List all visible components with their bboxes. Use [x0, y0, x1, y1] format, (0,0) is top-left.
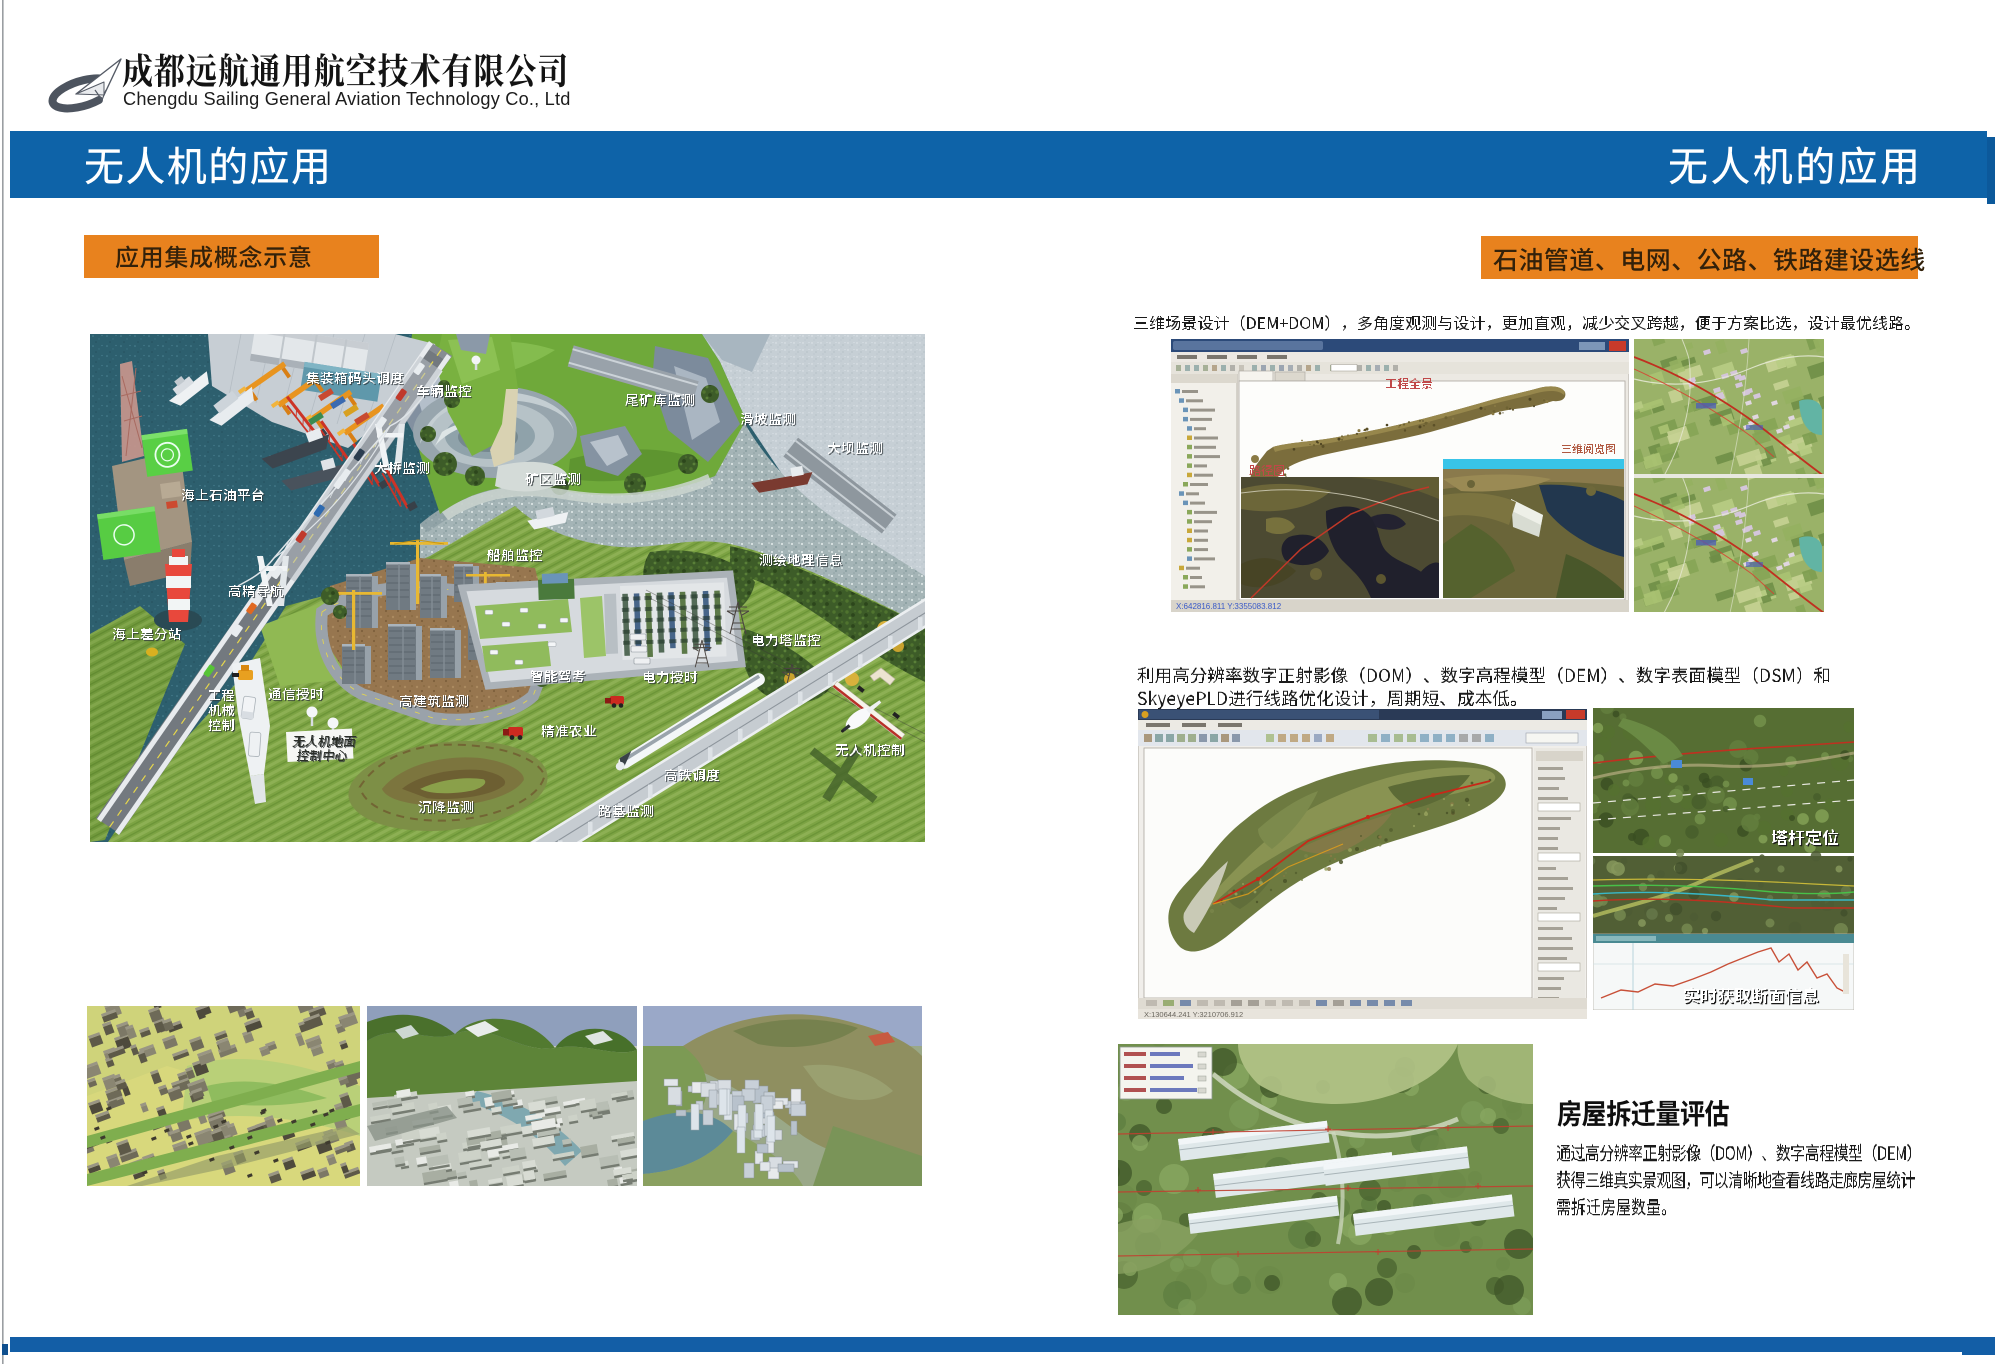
svg-text:X:642816.811 Y:3355083.812: X:642816.811 Y:3355083.812 [1176, 602, 1282, 611]
svg-text:Chengdu Sailing General Aviati: Chengdu Sailing General Aviation Technol… [123, 89, 571, 109]
svg-text:X:130644.241 Y:3210706.912: X:130644.241 Y:3210706.912 [1144, 1010, 1243, 1019]
